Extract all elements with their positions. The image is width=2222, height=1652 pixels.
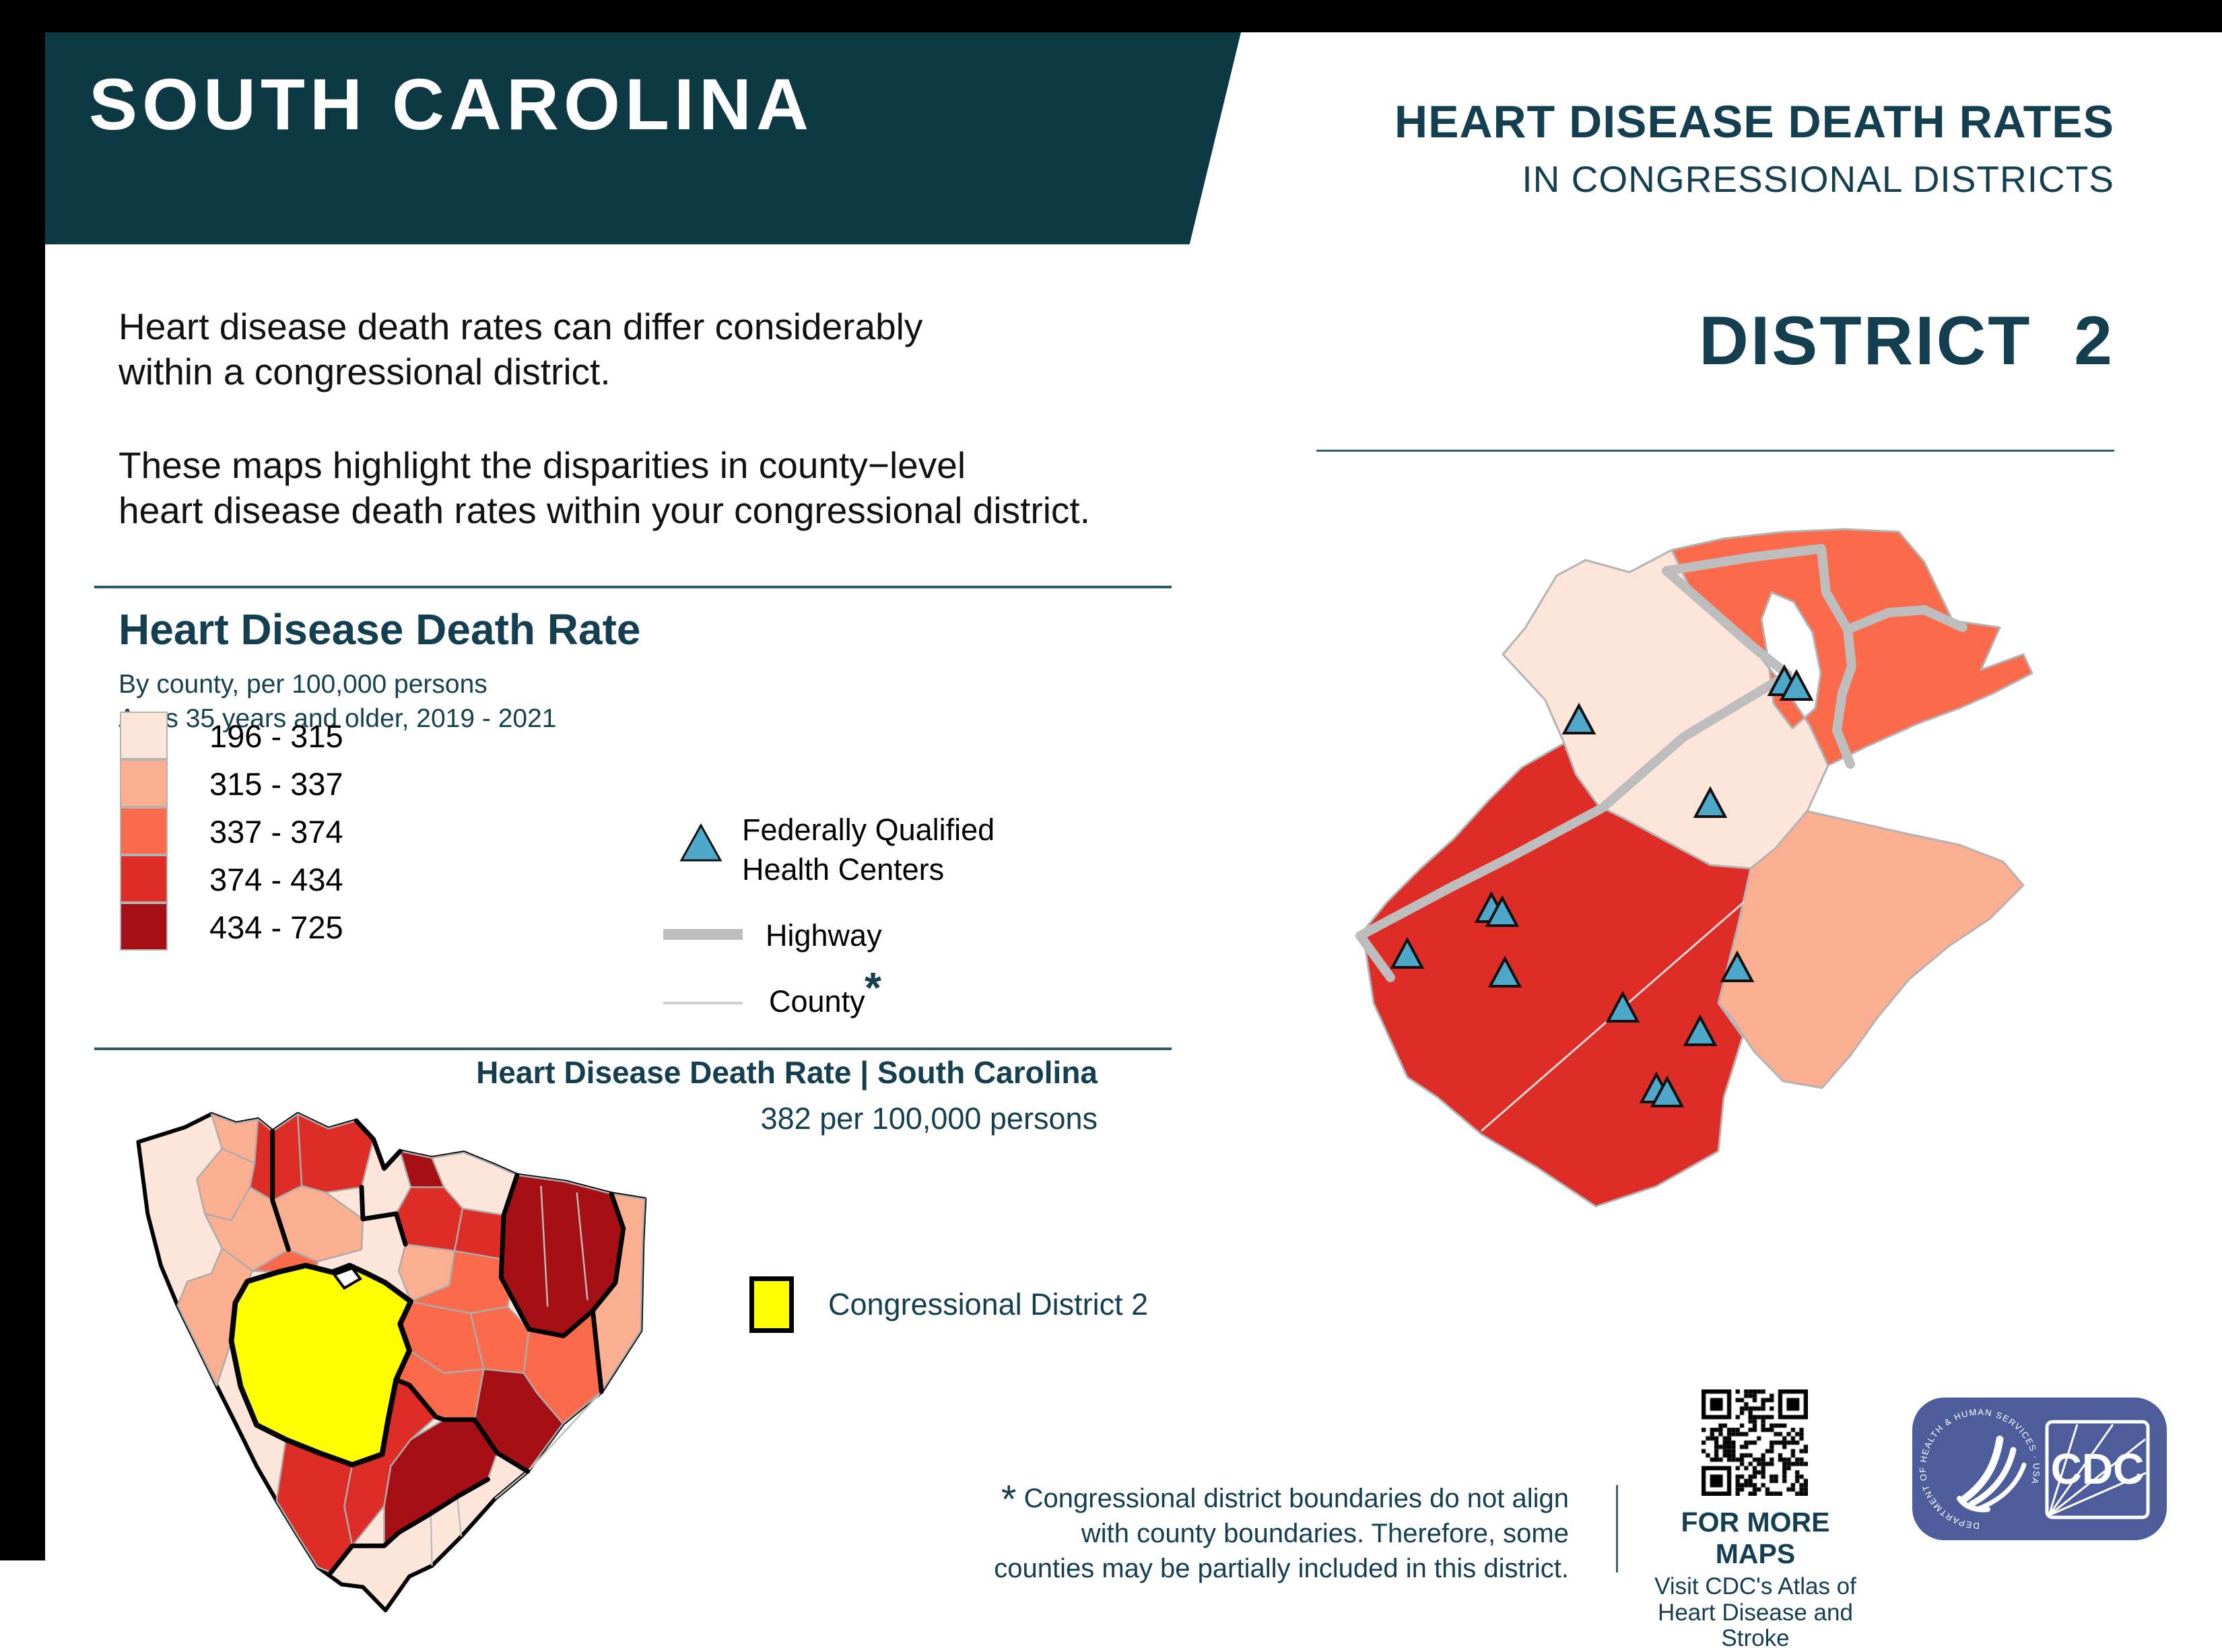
intro-p2-line1: These maps highlight the disparities in … — [119, 443, 1090, 488]
legend-color-swatch — [120, 807, 168, 855]
fqhc-legend-line2: Health Centers — [742, 850, 995, 890]
legend-class-row: 374 - 434 — [120, 856, 343, 903]
legend-class-row: 434 - 725 — [120, 903, 343, 951]
highway-legend-label: Highway — [766, 918, 882, 953]
district-2-legend-label: Congressional District 2 — [828, 1287, 1148, 1322]
highway-line-icon — [663, 929, 743, 940]
footnote-asterisk: * — [1001, 1478, 1017, 1521]
legend-color-swatch — [120, 903, 168, 951]
fqhc-legend-label: Federally Qualified Health Centers — [742, 811, 995, 889]
legend-color-scale: 196 - 315315 - 337337 - 374374 - 434434 … — [120, 712, 343, 951]
report-subtitle: IN CONGRESSIONAL DISTRICTS — [1394, 158, 2114, 201]
legend-class-label: 315 - 337 — [209, 765, 343, 802]
footnote-line3: counties may be partially included in th… — [994, 1551, 1569, 1586]
district-2-legend-swatch — [749, 1276, 794, 1333]
legend-class-row: 315 - 337 — [120, 760, 343, 808]
legend-class-label: 374 - 434 — [209, 861, 343, 898]
boundary-footnote: * Congressional district boundaries do n… — [994, 1481, 1569, 1586]
county-line-icon — [663, 1002, 743, 1004]
legend-class-label: 196 - 315 — [209, 718, 343, 755]
county-footnote-asterisk: * — [865, 963, 881, 1012]
district-heading-rule — [1316, 450, 2114, 452]
intro-p1-line1: Heart disease death rates can differ con… — [119, 304, 1090, 349]
page-left-margin — [0, 32, 45, 1560]
footnote-line2: with county boundaries. Therefore, some — [994, 1516, 1569, 1551]
legend-color-swatch — [120, 759, 168, 807]
county-legend-label: County — [769, 984, 865, 1019]
report-title: HEART DISEASE DEATH RATES — [1394, 96, 2114, 148]
more-maps-line2: Heart Disease and Stroke — [1638, 1600, 1873, 1652]
page-top-margin — [0, 0, 2222, 32]
more-maps-block: FOR MORE MAPS Visit CDC's Atlas of Heart… — [1638, 1507, 1873, 1652]
fqhc-legend-line1: Federally Qualified — [742, 811, 995, 850]
legend-color-swatch — [120, 855, 168, 903]
divider-top — [94, 586, 1172, 588]
district-county-patches — [1363, 529, 2032, 1206]
footnote-line1: Congressional district boundaries do not… — [1024, 1484, 1569, 1513]
state-choropleth-map — [94, 1107, 727, 1612]
legend-title: Heart Disease Death Rate — [119, 605, 640, 654]
district-heading: DISTRICT 2 — [1699, 302, 2114, 380]
divider-middle — [94, 1047, 1172, 1050]
intro-p1-line2: within a congressional district. — [119, 349, 1090, 394]
legend-color-swatch — [120, 712, 168, 759]
fqhc-triangle-icon — [679, 823, 723, 863]
cdc-logo-text: CDC — [2051, 1445, 2145, 1493]
report-header: HEART DISEASE DEATH RATES IN CONGRESSION… — [1394, 96, 2114, 201]
legend-class-label: 337 - 374 — [209, 813, 343, 850]
legend-class-label: 434 - 725 — [209, 909, 343, 946]
cdc-box-icon: CDC — [2047, 1422, 2148, 1517]
hhs-eagle-icon — [1959, 1439, 2024, 1509]
state-map-title: Heart Disease Death Rate | South Carolin… — [476, 1054, 1098, 1091]
qr-code — [1702, 1389, 1808, 1496]
more-maps-title: FOR MORE MAPS — [1638, 1507, 1873, 1570]
district-detail-map — [1279, 471, 2121, 1245]
legend-class-row: 337 - 374 — [120, 808, 343, 856]
legend-class-row: 196 - 315 — [120, 712, 343, 760]
intro-text: Heart disease death rates can differ con… — [119, 304, 1090, 533]
footer-divider — [1616, 1485, 1618, 1573]
cdc-hhs-logo: DEPARTMENT OF HEALTH & HUMAN SERVICES · … — [1912, 1398, 2167, 1540]
intro-p2-line2: heart disease death rates within your co… — [119, 488, 1090, 533]
state-banner-title: SOUTH CAROLINA — [89, 62, 813, 146]
legend-subtitle-line1: By county, per 100,000 persons — [119, 668, 556, 702]
more-maps-line1: Visit CDC's Atlas of — [1638, 1574, 1873, 1600]
